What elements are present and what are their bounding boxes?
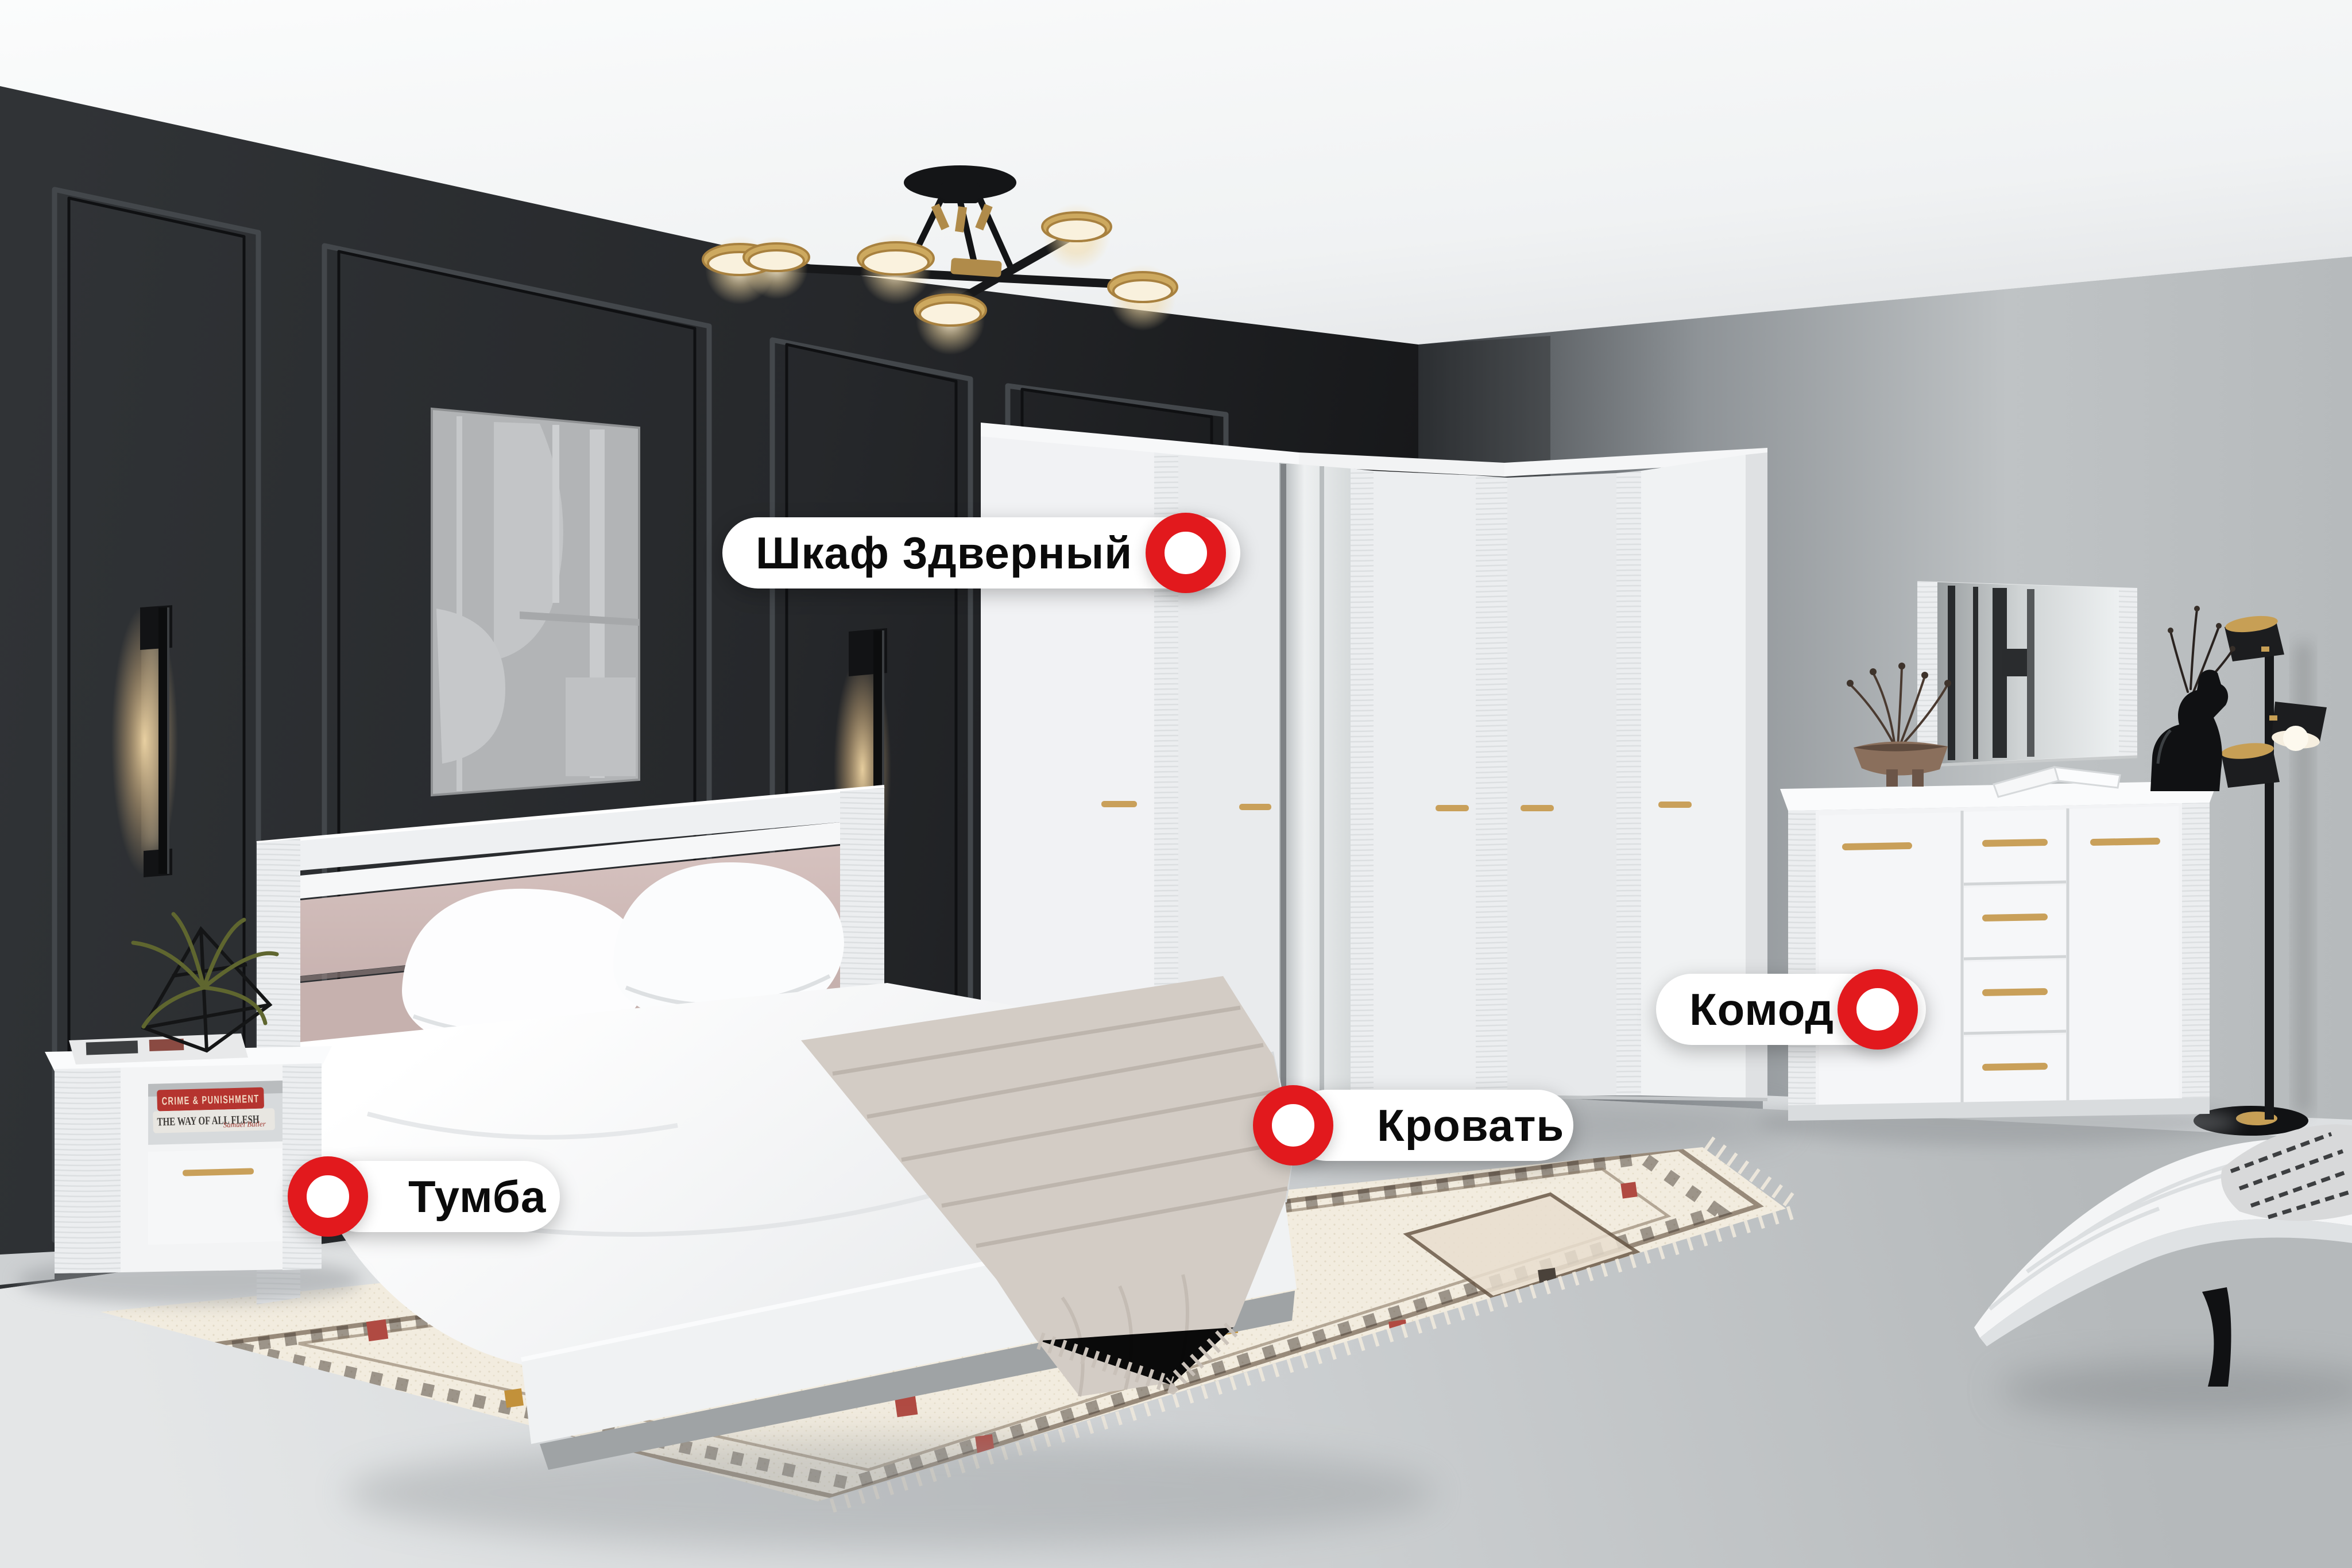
scene-canvas: CRIME & PUNISHMENT THE WAY OF ALL FLESH …: [0, 0, 2352, 1568]
label-wardrobe-text: Шкаф 3дверный: [756, 531, 1132, 575]
bed-hotspot-marker-icon[interactable]: [1253, 1085, 1333, 1166]
wall-art: [432, 409, 639, 795]
sconce-left: [111, 605, 178, 877]
book-gray-author: Samuel Butler: [223, 1120, 266, 1129]
label-dresser-text: Комод: [1689, 987, 1834, 1032]
wardrobe-hotspot-marker-icon[interactable]: [1146, 513, 1226, 593]
dresser-door-right: [2069, 806, 2179, 1108]
nightstand-hotspot-marker-icon[interactable]: [288, 1156, 368, 1237]
dresser: [1757, 781, 2239, 1145]
label-nightstand-text: Тумба: [408, 1174, 546, 1219]
book-red-title: CRIME & PUNISHMENT: [161, 1093, 259, 1108]
nightstand-drawer: [148, 1148, 283, 1245]
dresser-hotspot-marker-icon[interactable]: [1837, 969, 1918, 1050]
bedroom-scene: CRIME & PUNISHMENT THE WAY OF ALL FLESH …: [0, 0, 2352, 1568]
dresser-door-left: [1819, 812, 1960, 1110]
shelf-books: CRIME & PUNISHMENT THE WAY OF ALL FLESH …: [152, 1087, 275, 1133]
wall-mirror: [1917, 581, 2137, 766]
label-bed-text: Кровать: [1377, 1103, 1564, 1148]
